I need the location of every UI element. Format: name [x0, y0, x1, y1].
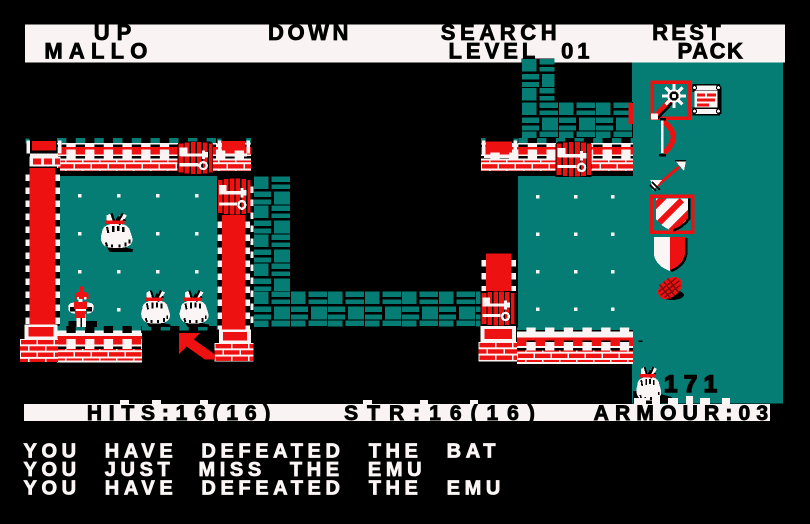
svg-text:DOWN: DOWN — [268, 20, 352, 45]
svg-text:YOU HAVE DEFEATED THE EMU: YOU HAVE DEFEATED THE EMU — [24, 478, 505, 500]
svg-text:STR:16(16): STR:16(16) — [344, 402, 544, 425]
svg-text:PACK: PACK — [677, 39, 744, 64]
svg-text:171: 171 — [664, 371, 724, 398]
svg-text:ARMOUR:03: ARMOUR:03 — [594, 402, 775, 425]
svg-text:MALLO: MALLO — [44, 39, 153, 64]
svg-text:LEVEL 01: LEVEL 01 — [448, 39, 593, 64]
svg-text:HITS:16(16): HITS:16(16) — [87, 402, 277, 425]
